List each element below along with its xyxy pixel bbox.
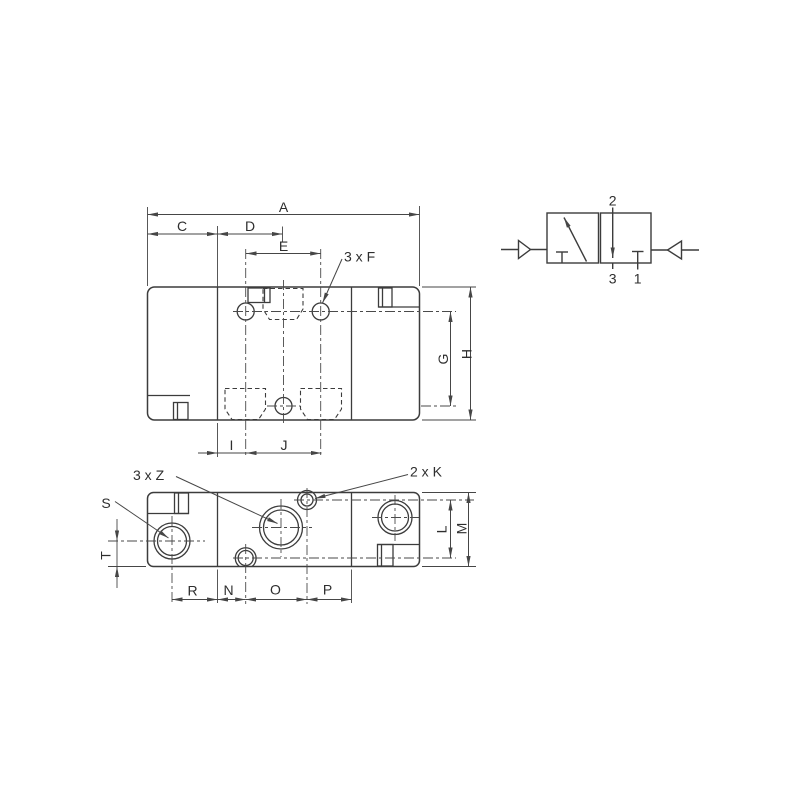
pilot-left [501,241,547,259]
dim-label-t: T [98,551,114,560]
dim-label-o: O [270,582,281,598]
top-boss-top-middle [248,288,270,303]
dim-label-3xf: 3 x F [344,249,375,265]
symbol-flow-arrow-diagonal [564,218,587,262]
dim-label-m: M [454,523,470,535]
dim-label-c: C [177,218,187,234]
pilot-right [651,241,699,259]
dim-label-h: H [459,349,475,359]
leader-2xk [315,475,408,499]
bottom-view: 3 x Z 2 x K S T L M R N O P [98,464,477,605]
hidden-pocket-top [263,289,303,320]
top-boss-top-right [379,288,420,307]
dim-label-r: R [187,583,197,599]
symbol-port-label-1: 1 [634,271,642,287]
symbol-port1-blocked [632,252,644,270]
dim-label-s: S [101,495,110,511]
dim-label-i: I [230,437,234,453]
top-view: A C D E 3 x F I J G H [148,199,477,458]
front-boss-top-left [148,493,189,514]
leader-3xf [323,259,343,303]
dim-label-3xz: 3 x Z [133,467,165,483]
leader-s [115,502,169,539]
symbol-port-label-2: 2 [609,193,617,209]
dim-label-2xk: 2 x K [410,464,443,480]
leader-3xz [176,477,278,524]
valve-dimension-drawing: A C D E 3 x F I J G H [0,0,800,800]
valve-symbol: 2 3 1 [501,193,699,287]
dim-label-d: D [245,218,255,234]
symbol-port-label-3: 3 [609,271,617,287]
dim-label-g: G [435,354,451,365]
dim-label-a: A [279,199,289,215]
dim-label-p: P [323,582,332,598]
dim-label-l: L [434,525,450,533]
drawing-page: A C D E 3 x F I J G H [0,0,800,800]
top-view-centerlines [233,249,456,458]
symbol-box-right [601,213,652,263]
top-view-dimension-lines [148,215,471,454]
symbol-port3-blocked [556,252,568,263]
symbol-box-left [547,213,599,263]
dim-label-j: J [281,437,288,453]
top-boss-bottom-left [148,396,190,420]
dim-label-e: E [279,238,288,254]
front-boss-bottom-right [377,545,419,567]
dim-label-n: N [223,582,233,598]
